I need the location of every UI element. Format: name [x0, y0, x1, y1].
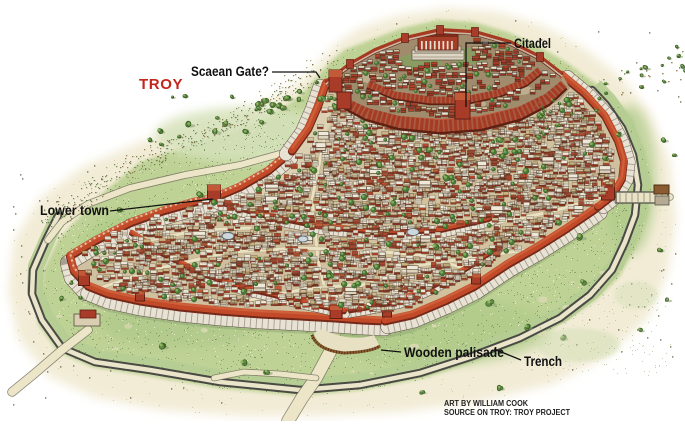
- svg-text:Scaean Gate?: Scaean Gate?: [191, 64, 269, 79]
- svg-text:TROY: TROY: [139, 76, 183, 93]
- svg-text:Wooden palisade: Wooden palisade: [404, 345, 504, 360]
- svg-text:Lower town: Lower town: [40, 203, 109, 218]
- svg-text:Citadel: Citadel: [514, 36, 551, 51]
- svg-text:SOURCE ON TROY: TROY PROJECT: SOURCE ON TROY: TROY PROJECT: [444, 408, 570, 417]
- svg-text:ART BY WILLIAM COOK: ART BY WILLIAM COOK: [444, 399, 528, 408]
- svg-text:Trench: Trench: [524, 354, 562, 369]
